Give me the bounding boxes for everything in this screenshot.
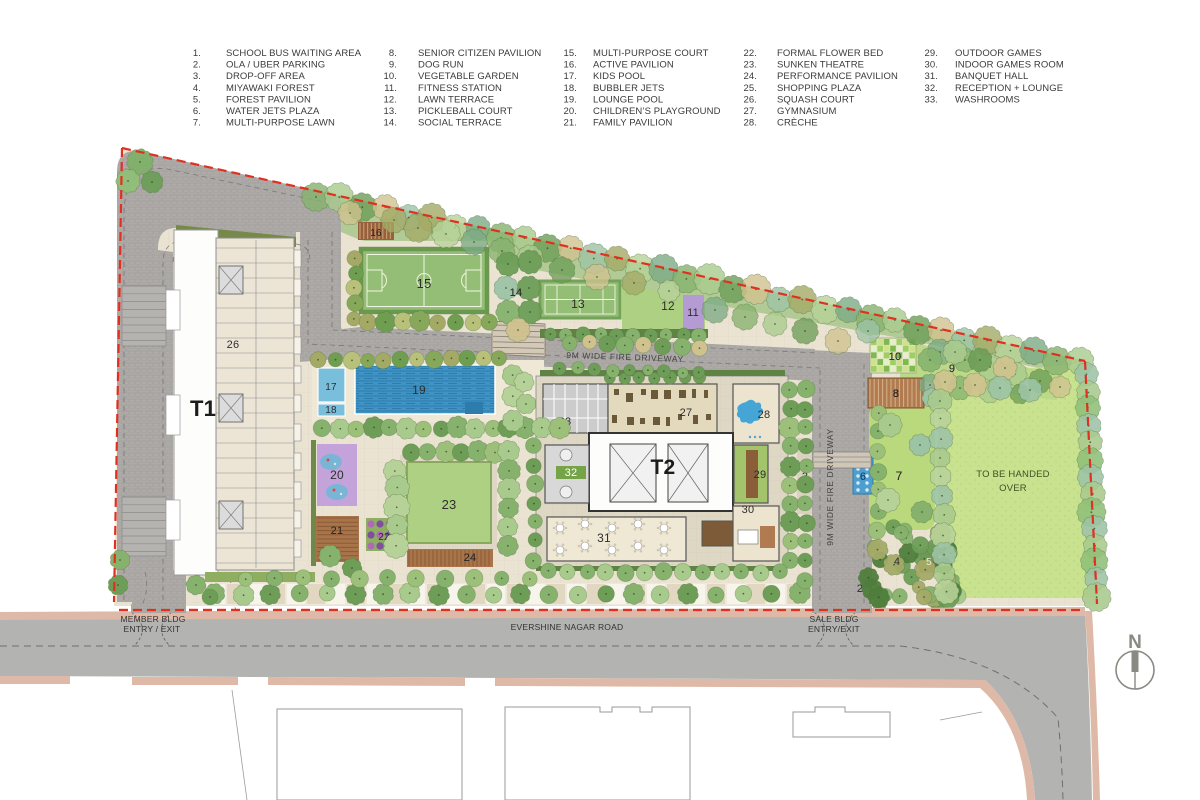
svg-text:24.: 24.	[743, 71, 757, 82]
svg-text:1.: 1.	[193, 48, 201, 59]
svg-text:33.: 33.	[924, 95, 938, 106]
svg-text:9: 9	[949, 363, 955, 375]
svg-text:14: 14	[510, 287, 523, 299]
svg-text:19.: 19.	[563, 95, 577, 106]
svg-text:21.: 21.	[563, 118, 577, 129]
svg-text:32: 32	[565, 467, 578, 479]
svg-text:DROP-OFF AREA: DROP-OFF AREA	[226, 71, 305, 82]
svg-text:29.: 29.	[924, 48, 938, 59]
svg-text:18: 18	[325, 405, 337, 416]
svg-text:SCHOOL BUS WAITING AREA: SCHOOL BUS WAITING AREA	[226, 48, 362, 59]
svg-text:5.: 5.	[193, 95, 201, 106]
svg-text:KIDS POOL: KIDS POOL	[593, 71, 645, 82]
svg-text:5: 5	[926, 557, 932, 568]
svg-text:LAWN TERRACE: LAWN TERRACE	[418, 95, 494, 106]
svg-text:FOREST PAVILION: FOREST PAVILION	[226, 95, 311, 106]
svg-text:SQUASH COURT: SQUASH COURT	[777, 95, 855, 106]
svg-text:6: 6	[860, 471, 866, 483]
svg-text:11.: 11.	[384, 83, 397, 94]
svg-text:PERFORMANCE PAVILION: PERFORMANCE PAVILION	[777, 71, 898, 82]
svg-text:CHILDREN’S PLAYGROUND: CHILDREN’S PLAYGROUND	[593, 106, 721, 117]
svg-text:7.: 7.	[193, 118, 201, 129]
svg-text:ENTRY/EXIT: ENTRY/EXIT	[808, 624, 860, 634]
svg-text:17: 17	[325, 382, 337, 393]
svg-text:4: 4	[894, 556, 900, 568]
svg-text:SHOPPING PLAZA: SHOPPING PLAZA	[777, 83, 862, 94]
svg-text:21: 21	[331, 525, 344, 537]
svg-text:FORMAL FLOWER BED: FORMAL FLOWER BED	[777, 48, 883, 59]
svg-text:MULTI-PURPOSE COURT: MULTI-PURPOSE COURT	[593, 48, 709, 59]
svg-text:MEMBER BLDG: MEMBER BLDG	[120, 614, 185, 624]
svg-text:9.: 9.	[389, 60, 397, 71]
svg-text:LOUNGE POOL: LOUNGE POOL	[593, 95, 663, 106]
svg-text:13.: 13.	[383, 106, 397, 117]
svg-text:T2: T2	[651, 456, 676, 479]
svg-text:ACTIVE PAVILION: ACTIVE PAVILION	[593, 60, 674, 71]
svg-text:TO BE HANDED: TO BE HANDED	[976, 469, 1050, 480]
svg-text:13: 13	[571, 297, 585, 311]
svg-text:31.: 31.	[924, 71, 938, 82]
svg-text:4.: 4.	[193, 83, 201, 94]
svg-text:8.: 8.	[389, 48, 397, 59]
svg-text:32.: 32.	[924, 83, 938, 94]
svg-text:OUTDOOR GAMES: OUTDOOR GAMES	[955, 48, 1042, 59]
svg-text:30: 30	[742, 504, 755, 516]
svg-text:ENTRY / EXIT: ENTRY / EXIT	[124, 624, 181, 634]
svg-text:MIYAWAKI FOREST: MIYAWAKI FOREST	[226, 83, 315, 94]
svg-text:26.: 26.	[743, 95, 757, 106]
svg-text:27: 27	[680, 407, 693, 419]
svg-text:GYMNASIUM: GYMNASIUM	[777, 106, 837, 117]
svg-text:17.: 17.	[563, 71, 577, 82]
svg-text:23.: 23.	[743, 60, 757, 71]
svg-text:11: 11	[687, 307, 699, 319]
svg-text:OVER: OVER	[999, 483, 1027, 494]
svg-text:28.: 28.	[743, 118, 757, 129]
svg-text:15: 15	[417, 276, 432, 291]
svg-text:EVERSHINE NAGAR ROAD: EVERSHINE NAGAR ROAD	[511, 622, 624, 632]
svg-text:26: 26	[227, 339, 240, 351]
svg-text:WASHROOMS: WASHROOMS	[955, 95, 1020, 106]
svg-text:16: 16	[370, 228, 382, 239]
svg-text:24: 24	[464, 552, 477, 564]
svg-text:VEGETABLE GARDEN: VEGETABLE GARDEN	[418, 71, 519, 82]
svg-text:29: 29	[754, 469, 767, 481]
svg-text:10: 10	[889, 351, 902, 363]
svg-text:25.: 25.	[743, 83, 757, 94]
svg-text:FAMILY PAVILION: FAMILY PAVILION	[593, 118, 673, 129]
svg-text:FITNESS STATION: FITNESS STATION	[418, 83, 502, 94]
svg-text:BANQUET HALL: BANQUET HALL	[955, 71, 1028, 82]
svg-text:2.: 2.	[193, 60, 201, 71]
svg-text:SENIOR CITIZEN PAVILION: SENIOR CITIZEN PAVILION	[418, 48, 541, 59]
svg-text:INDOOR GAMES ROOM: INDOOR GAMES ROOM	[955, 60, 1064, 71]
svg-text:RECEPTION + LOUNGE: RECEPTION + LOUNGE	[955, 83, 1063, 94]
svg-text:SUNKEN THEATRE: SUNKEN THEATRE	[777, 60, 864, 71]
svg-text:20: 20	[330, 468, 344, 482]
svg-text:6.: 6.	[193, 106, 201, 117]
svg-text:30.: 30.	[924, 60, 938, 71]
svg-text:WATER JETS PLAZA: WATER JETS PLAZA	[226, 106, 320, 117]
svg-text:3.: 3.	[193, 71, 201, 82]
svg-text:16.: 16.	[563, 60, 577, 71]
svg-text:SOCIAL TERRACE: SOCIAL TERRACE	[418, 118, 502, 129]
svg-text:DOG RUN: DOG RUN	[418, 60, 464, 71]
svg-text:14.: 14.	[383, 118, 397, 129]
svg-text:T1: T1	[190, 396, 216, 421]
svg-text:15.: 15.	[563, 48, 577, 59]
svg-text:N: N	[1128, 632, 1142, 653]
svg-text:OLA / UBER PARKING: OLA / UBER PARKING	[226, 60, 325, 71]
svg-text:28: 28	[758, 409, 771, 421]
svg-text:18.: 18.	[563, 83, 577, 94]
svg-text:MULTI-PURPOSE LAWN: MULTI-PURPOSE LAWN	[226, 118, 335, 129]
svg-text:CRÈCHE: CRÈCHE	[777, 118, 818, 129]
svg-text:PICKLEBALL COURT: PICKLEBALL COURT	[418, 106, 513, 117]
svg-text:31: 31	[597, 531, 611, 545]
svg-text:7: 7	[896, 469, 903, 483]
svg-text:20.: 20.	[563, 106, 577, 117]
svg-text:19: 19	[412, 383, 426, 397]
svg-text:12.: 12.	[383, 95, 397, 106]
svg-text:SALE BLDG: SALE BLDG	[809, 614, 858, 624]
svg-text:BUBBLER JETS: BUBBLER JETS	[593, 83, 664, 94]
svg-text:23: 23	[442, 497, 457, 512]
svg-text:27.: 27.	[743, 106, 757, 117]
svg-text:8: 8	[893, 388, 899, 400]
svg-text:22.: 22.	[743, 48, 757, 59]
svg-text:10.: 10.	[383, 71, 397, 82]
svg-text:9M WIDE FIRE DRIVEWAY: 9M WIDE FIRE DRIVEWAY	[825, 428, 835, 545]
